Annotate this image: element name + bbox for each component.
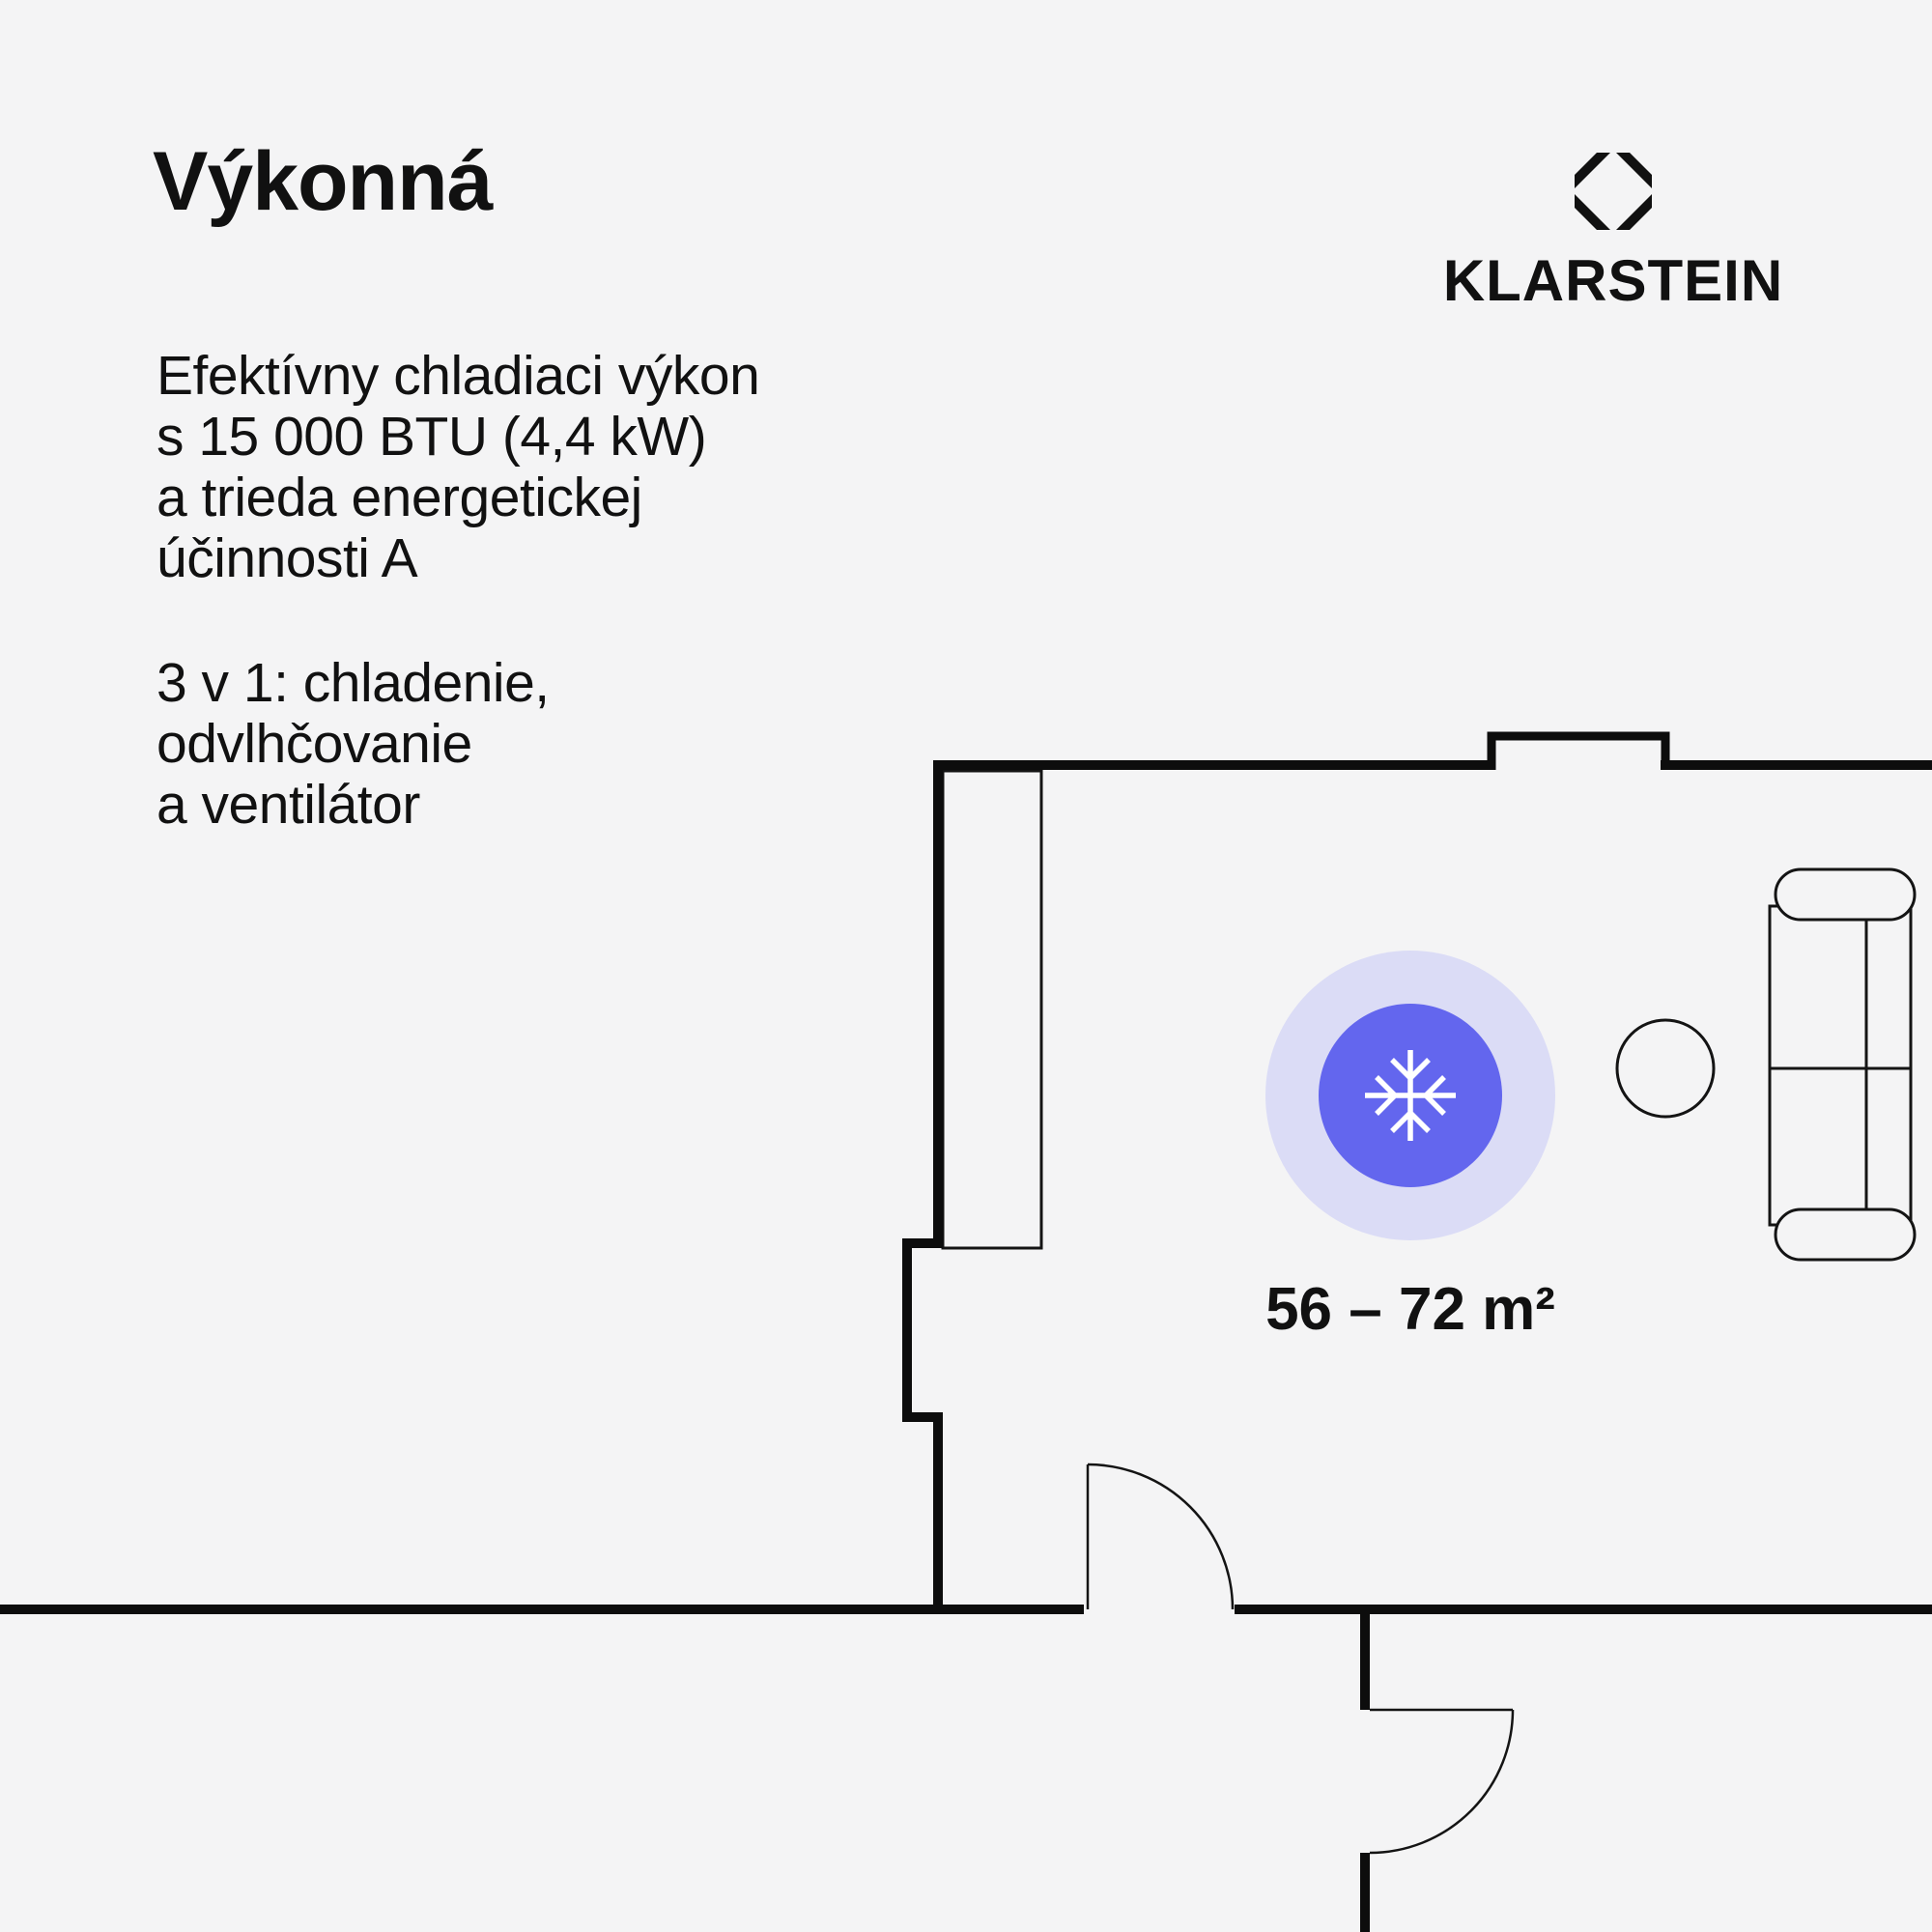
sofa-body: [1770, 906, 1911, 1225]
top-wall-niche: [1492, 736, 1665, 770]
side-table: [1617, 1020, 1714, 1117]
entry-door: [1088, 1464, 1233, 1609]
entry-door-swing-arc: [1088, 1464, 1233, 1609]
floor-plan: [0, 0, 1932, 1932]
infographic-slide: Výkonná Efektívny chladiaci výkon s 15 0…: [0, 0, 1932, 1932]
area-range-label: 56 – 72 m²: [1265, 1275, 1555, 1344]
hall-door: [1370, 1710, 1513, 1853]
sofa: [1770, 869, 1915, 1260]
closet: [943, 771, 1041, 1248]
cooling-zone-badge: [1265, 951, 1555, 1240]
sofa-armrest-bottom: [1776, 1209, 1915, 1260]
hall-door-swing-arc: [1370, 1710, 1513, 1853]
sofa-armrest-top: [1776, 869, 1915, 920]
left-wall: [907, 760, 938, 1614]
